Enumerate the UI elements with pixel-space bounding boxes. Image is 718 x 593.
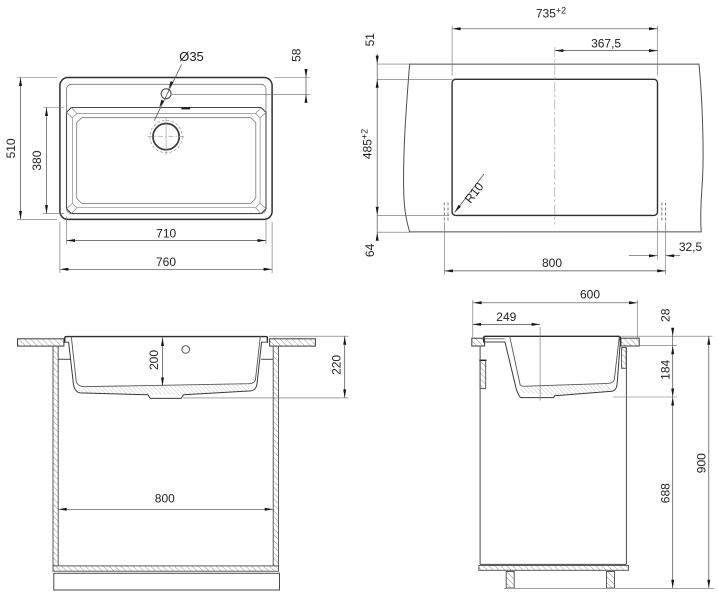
svg-text:Ø35: Ø35 (179, 49, 204, 64)
svg-text:58: 58 (290, 48, 304, 62)
svg-text:249: 249 (496, 310, 516, 324)
svg-text:200: 200 (147, 350, 161, 370)
svg-text:710: 710 (156, 226, 176, 240)
svg-text:600: 600 (580, 288, 600, 302)
svg-text:220: 220 (330, 355, 344, 375)
svg-text:380: 380 (30, 150, 44, 170)
svg-text:688: 688 (659, 483, 673, 503)
svg-text:28: 28 (659, 308, 673, 322)
svg-text:32,5: 32,5 (679, 240, 703, 254)
svg-text:900: 900 (695, 453, 709, 473)
svg-text:800: 800 (155, 492, 175, 506)
svg-text:800: 800 (542, 256, 562, 270)
svg-text:64: 64 (363, 243, 377, 257)
svg-text:184: 184 (659, 359, 673, 379)
svg-text:510: 510 (4, 138, 18, 158)
svg-text:367,5: 367,5 (591, 36, 621, 50)
svg-text:51: 51 (363, 33, 377, 47)
svg-text:760: 760 (156, 255, 176, 269)
